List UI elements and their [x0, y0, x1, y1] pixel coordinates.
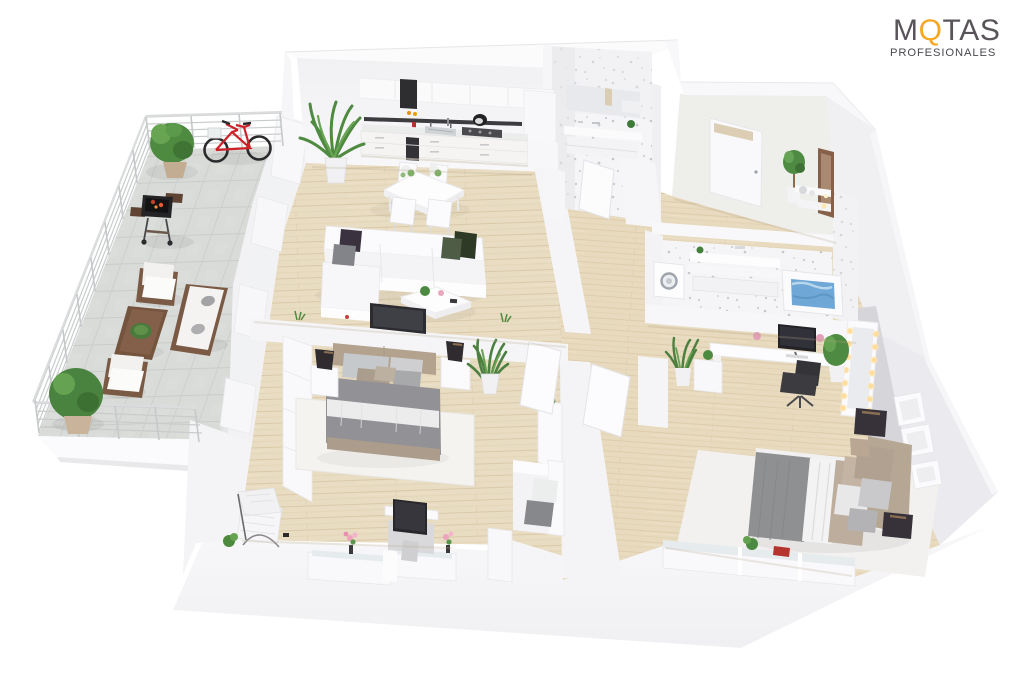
svg-text:PROFESIONALES: PROFESIONALES [890, 47, 996, 59]
svg-text:MQTAS: MQTAS [893, 14, 1000, 47]
